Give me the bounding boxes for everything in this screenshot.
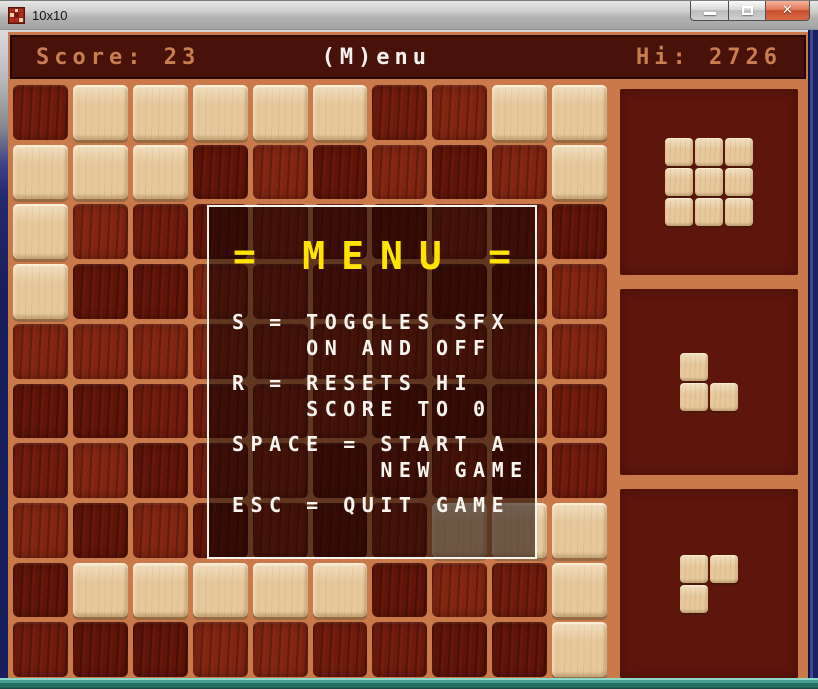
menu-line: NEW GAME: [232, 457, 535, 483]
window-right-border: [808, 30, 818, 678]
board-cell[interactable]: [73, 204, 128, 259]
window-title: 10x10: [32, 8, 67, 23]
board-cell[interactable]: [253, 563, 308, 618]
menu-title-right-equals: =: [488, 234, 511, 278]
board-cell[interactable]: [73, 264, 128, 319]
board-cell[interactable]: [73, 324, 128, 379]
board-cell[interactable]: [133, 85, 188, 140]
board-cell[interactable]: [13, 443, 68, 498]
board-cell[interactable]: [13, 204, 68, 259]
board-cell[interactable]: [133, 563, 188, 618]
piece-empty-slot: [710, 585, 738, 613]
board-cell[interactable]: [372, 145, 427, 200]
board-cell[interactable]: [73, 503, 128, 558]
board-cell[interactable]: [73, 563, 128, 618]
board-cell[interactable]: [432, 85, 487, 140]
board-cell[interactable]: [253, 145, 308, 200]
menu-line: SPACE = START A: [232, 431, 535, 457]
piece-block: [725, 168, 753, 196]
menu-line: ON AND OFF: [232, 335, 535, 361]
desktop: 10x10 ✕ Score: 23 (M)enu Hi: 2726: [0, 0, 818, 689]
board-cell[interactable]: [492, 622, 547, 677]
piece-empty-slot: [710, 353, 738, 381]
board-cell[interactable]: [133, 324, 188, 379]
piece-block: [665, 138, 693, 166]
close-icon: ✕: [782, 4, 793, 17]
maximize-button[interactable]: [728, 1, 766, 21]
board-cell[interactable]: [552, 503, 607, 558]
maximize-icon: [742, 6, 753, 15]
piece-preview-1[interactable]: [620, 89, 798, 275]
board-cell[interactable]: [552, 622, 607, 677]
board-cell[interactable]: [432, 145, 487, 200]
board-cell[interactable]: [73, 384, 128, 439]
minimize-icon: [704, 12, 716, 15]
board-cell[interactable]: [492, 85, 547, 140]
board-cell[interactable]: [253, 85, 308, 140]
board-cell[interactable]: [432, 622, 487, 677]
board-cell[interactable]: [313, 145, 368, 200]
score-display: Score: 23: [36, 45, 200, 70]
board-cell[interactable]: [133, 204, 188, 259]
window-left-border: [0, 30, 8, 678]
board-cell[interactable]: [313, 563, 368, 618]
board-cell[interactable]: [552, 443, 607, 498]
piece-block: [680, 555, 708, 583]
hi-label: Hi:: [636, 45, 691, 70]
taskbar-edge: [0, 678, 818, 689]
piece-block: [680, 585, 708, 613]
menu-title-text: MENU: [302, 234, 458, 278]
menu-overlay: = MENU = S = TOGGLES SFX ON AND OFFR = R…: [207, 205, 537, 559]
board-cell[interactable]: [13, 85, 68, 140]
board-cell[interactable]: [193, 85, 248, 140]
hi-value: 2726: [709, 45, 782, 70]
menu-line: R = RESETS HI: [232, 370, 535, 396]
piece-block: [680, 383, 708, 411]
menu-button[interactable]: (M)enu: [322, 45, 431, 70]
board-cell[interactable]: [432, 563, 487, 618]
board-cell[interactable]: [552, 85, 607, 140]
menu-line: ESC = QUIT GAME: [232, 492, 535, 518]
board-cell[interactable]: [133, 622, 188, 677]
board-cell[interactable]: [372, 563, 427, 618]
piece-square-3x3: [664, 137, 754, 227]
menu-title-left-equals: =: [233, 234, 256, 278]
board-cell[interactable]: [313, 85, 368, 140]
board-cell[interactable]: [133, 443, 188, 498]
piece-block: [665, 168, 693, 196]
board-cell[interactable]: [552, 204, 607, 259]
board-cell[interactable]: [133, 503, 188, 558]
menu-line: S = TOGGLES SFX: [232, 309, 535, 335]
board-cell[interactable]: [133, 145, 188, 200]
piece-block: [710, 555, 738, 583]
window-controls: ✕: [690, 1, 810, 21]
board-cell[interactable]: [193, 563, 248, 618]
board-cell[interactable]: [13, 384, 68, 439]
board-cell[interactable]: [13, 264, 68, 319]
piece-block: [695, 168, 723, 196]
board-cell[interactable]: [193, 145, 248, 200]
board-cell[interactable]: [13, 503, 68, 558]
piece-block: [680, 353, 708, 381]
piece-preview-3[interactable]: [620, 489, 798, 678]
piece-block: [695, 198, 723, 226]
board-cell[interactable]: [73, 145, 128, 200]
board-cell[interactable]: [13, 324, 68, 379]
score-value: 23: [164, 45, 201, 70]
app-icon: [8, 7, 25, 24]
board-cell[interactable]: [552, 324, 607, 379]
board-cell[interactable]: [313, 622, 368, 677]
minimize-button[interactable]: [690, 1, 728, 21]
board-cell[interactable]: [372, 85, 427, 140]
piece-corner-1: [679, 352, 739, 412]
board-cell[interactable]: [492, 145, 547, 200]
window-titlebar: 10x10 ✕: [0, 0, 818, 30]
board-cell[interactable]: [73, 443, 128, 498]
board-cell[interactable]: [552, 384, 607, 439]
board-cell[interactable]: [193, 622, 248, 677]
piece-block: [695, 138, 723, 166]
menu-title: = MENU =: [209, 231, 535, 281]
board-cell[interactable]: [73, 622, 128, 677]
board-cell[interactable]: [372, 622, 427, 677]
piece-preview-2[interactable]: [620, 289, 798, 475]
piece-block: [725, 138, 753, 166]
menu-items: S = TOGGLES SFX ON AND OFFR = RESETS HI …: [209, 309, 535, 518]
menu-line: SCORE TO 0: [232, 396, 535, 422]
board-cell[interactable]: [73, 85, 128, 140]
board-cell[interactable]: [13, 563, 68, 618]
board-cell[interactable]: [13, 145, 68, 200]
board-cell[interactable]: [552, 563, 607, 618]
board-cell[interactable]: [552, 145, 607, 200]
board-cell[interactable]: [552, 264, 607, 319]
score-header: Score: 23 (M)enu Hi: 2726: [10, 35, 806, 79]
game-window: Score: 23 (M)enu Hi: 2726 = MENU = S = T…: [8, 30, 808, 678]
piece-corner-2: [679, 554, 739, 614]
board-cell[interactable]: [133, 384, 188, 439]
board-cell[interactable]: [133, 264, 188, 319]
piece-block: [665, 198, 693, 226]
score-label: Score:: [36, 45, 145, 70]
board-cell[interactable]: [13, 622, 68, 677]
board-cell[interactable]: [492, 563, 547, 618]
hi-score-display: Hi: 2726: [636, 45, 782, 70]
piece-block: [710, 383, 738, 411]
close-button[interactable]: ✕: [766, 1, 810, 21]
board-cell[interactable]: [253, 622, 308, 677]
piece-block: [725, 198, 753, 226]
